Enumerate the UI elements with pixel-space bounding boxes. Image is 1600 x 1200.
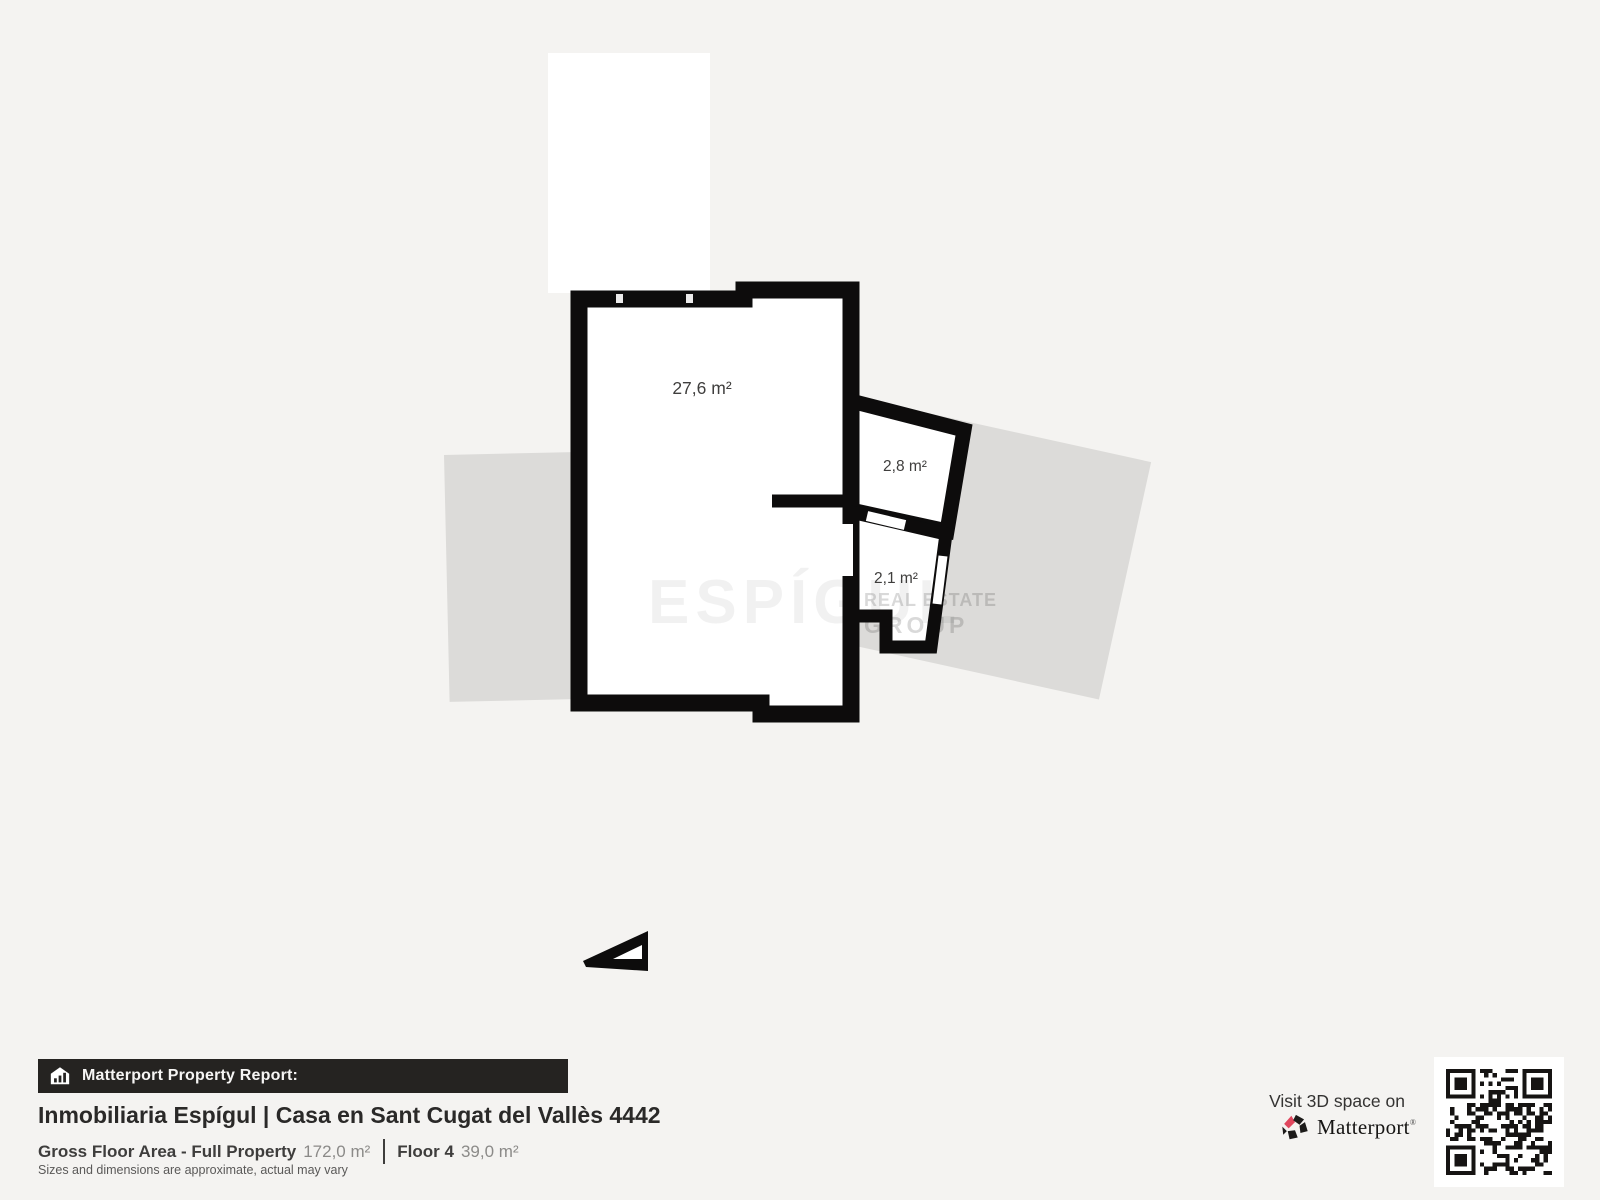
report-badge-bar: Matterport Property Report: (38, 1059, 568, 1093)
matterport-brand: Matterport® (1280, 1113, 1416, 1142)
floorplan-canvas: ESPÍGUL REAL ESTATE GROUP 27,6 m² 2,8 m²… (0, 0, 1600, 1200)
room-label-2-1: 2,1 m² (874, 570, 918, 587)
disclaimer-text: Sizes and dimensions are approximate, ac… (38, 1163, 348, 1177)
wall-fixture-mark-2 (686, 294, 693, 303)
registered-mark: ® (1410, 1118, 1416, 1127)
floor-value: 39,0 m² (461, 1142, 519, 1162)
wall-fixture-mark-1 (616, 294, 623, 303)
visit-3d-text: Visit 3D space on (1252, 1091, 1422, 1112)
report-badge-label: Matterport Property Report: (82, 1067, 298, 1085)
floor-stats: Gross Floor Area - Full Property 172,0 m… (38, 1139, 519, 1164)
floorplan-report-page: ESPÍGUL REAL ESTATE GROUP 27,6 m² 2,8 m²… (0, 0, 1600, 1200)
floor-label: Floor 4 (397, 1142, 454, 1162)
gross-area-label: Gross Floor Area - Full Property (38, 1142, 296, 1162)
room-label-2-8: 2,8 m² (883, 458, 927, 475)
qr-code (1434, 1057, 1564, 1187)
adjacent-area-left (444, 452, 584, 702)
matterport-logo-icon (1280, 1113, 1310, 1142)
room-label-main: 27,6 m² (672, 378, 731, 398)
house-chart-icon (49, 1065, 71, 1087)
window-opening-2-1 (937, 556, 943, 604)
matterport-wordmark: Matterport® (1317, 1115, 1416, 1140)
upper-level-outline (548, 53, 710, 293)
property-title: Inmobiliaria Espígul | Casa en Sant Cuga… (38, 1102, 661, 1129)
gross-area-value: 172,0 m² (303, 1142, 370, 1162)
stats-divider (383, 1139, 385, 1164)
door-opening-main-right (842, 524, 853, 576)
